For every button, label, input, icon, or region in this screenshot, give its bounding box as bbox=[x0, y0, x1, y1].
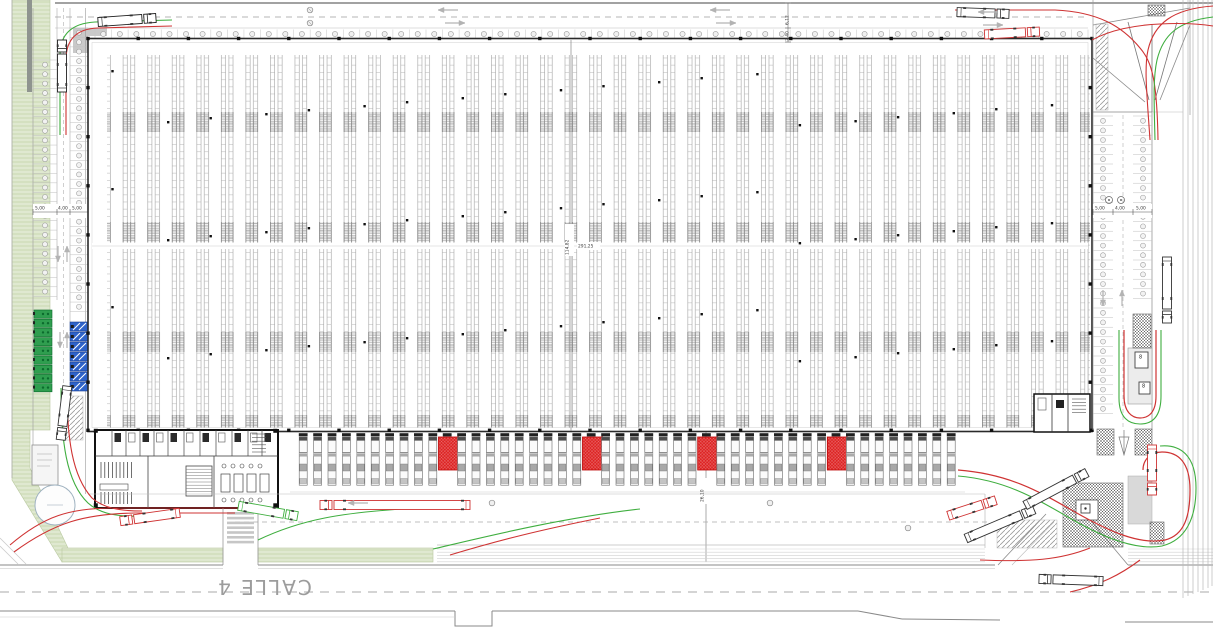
red-dock-marker bbox=[827, 437, 847, 470]
dim-yard: 26,10 bbox=[700, 489, 704, 502]
tech-room bbox=[1034, 394, 1090, 432]
red-dock-marker bbox=[439, 437, 459, 470]
truck bbox=[320, 500, 470, 510]
red-dock-marker bbox=[583, 437, 603, 470]
dim-left-aisle: 4,00 bbox=[58, 206, 68, 210]
sign-8-a: 8 bbox=[1139, 355, 1142, 360]
dim-left-stall-b: 5,00 bbox=[72, 206, 82, 210]
truck bbox=[57, 40, 67, 92]
entry-gate-north bbox=[1093, 0, 1190, 115]
tree-strip bbox=[95, 30, 1088, 39]
site-plan-svg bbox=[0, 0, 1213, 636]
street-name-label: CALLE 4 bbox=[176, 575, 352, 599]
dim-right-aisle: 4,00 bbox=[1115, 206, 1125, 210]
dim-top-verge: 2,40 bbox=[785, 31, 789, 41]
dim-building-width: 114,82 bbox=[565, 240, 569, 255]
red-dock-marker bbox=[698, 437, 718, 470]
right-street bbox=[1152, 0, 1212, 598]
site-plan: 5,00 4,00 5,00 5,00 4,00 5,00 114,82 291… bbox=[0, 0, 1213, 636]
truck bbox=[947, 495, 998, 520]
truck bbox=[984, 26, 1039, 39]
green-parking-stalls bbox=[33, 310, 52, 392]
sign-8-b: 8 bbox=[1142, 384, 1145, 389]
dim-right-stall-b: 5,00 bbox=[1136, 206, 1146, 210]
truck bbox=[1039, 574, 1103, 587]
dim-left-stall-a: 5,00 bbox=[35, 206, 45, 210]
dim-building-length: 291,25 bbox=[578, 244, 593, 248]
office-block bbox=[94, 429, 278, 508]
truck bbox=[1147, 445, 1157, 495]
top-road bbox=[55, 3, 1213, 28]
truck bbox=[98, 13, 157, 27]
warehouse-building bbox=[86, 37, 1093, 432]
truck bbox=[1162, 257, 1172, 323]
dim-right-stall-a: 5,00 bbox=[1095, 206, 1105, 210]
dock-row bbox=[290, 433, 965, 492]
dim-top-road: 6,12 bbox=[785, 15, 789, 25]
racking-area bbox=[92, 55, 1090, 428]
